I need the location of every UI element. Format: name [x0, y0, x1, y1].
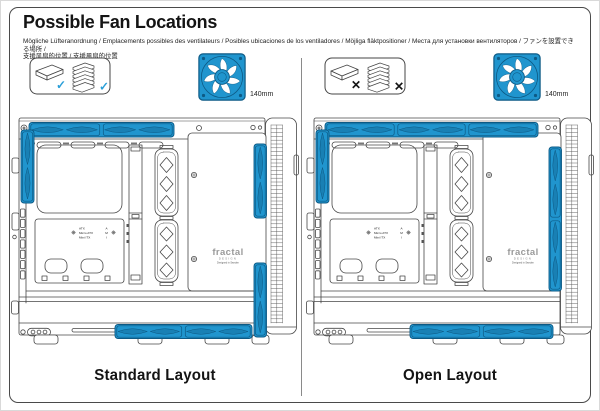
svg-text:Mini ITX: Mini ITX [374, 236, 385, 240]
svg-text:ATX: ATX [79, 227, 85, 231]
layout-section-open: ✕✕ 140mm ATXAMicro ATXMMini ITXIfractalD… [304, 51, 596, 403]
svg-text:I: I [401, 236, 402, 240]
layout-label-standard: Standard Layout [13, 367, 296, 385]
case-diagram-standard: ATXAMicro ATXMMini ITXIfractalDESIGNDesi… [9, 113, 299, 363]
svg-text:fractal: fractal [507, 247, 538, 258]
svg-text:Mini ITX: Mini ITX [79, 236, 90, 240]
svg-text:Designed in Sweden: Designed in Sweden [512, 262, 535, 265]
case-diagram-open: ATXAMicro ATXMMini ITXIfractalDESIGNDesi… [304, 113, 594, 363]
fan-size-label: 140mm [250, 91, 273, 98]
svg-text:DESIGN: DESIGN [219, 257, 237, 261]
layout-label-open: Open Layout [308, 367, 591, 385]
svg-text:I: I [106, 236, 107, 240]
svg-text:✓: ✓ [99, 80, 109, 94]
svg-text:Designed in Sweden: Designed in Sweden [217, 262, 240, 265]
page-title: Possible Fan Locations [23, 11, 217, 33]
svg-text:DESIGN: DESIGN [514, 257, 532, 261]
fan-140mm-icon [198, 53, 246, 101]
svg-text:✓: ✓ [56, 78, 66, 92]
drive-cages-removed-icon: ✕✕ [324, 57, 406, 95]
svg-text:Micro ATX: Micro ATX [79, 231, 93, 235]
fan-size-label: 140mm [545, 91, 568, 98]
layout-section-standard: ✓✓ 140mm ATXAMicro ATXMMini ITXIfractalD… [9, 51, 301, 403]
fan-140mm-icon [493, 53, 541, 101]
svg-text:✕: ✕ [351, 78, 361, 92]
svg-text:Micro ATX: Micro ATX [374, 231, 388, 235]
svg-text:M: M [105, 231, 108, 235]
svg-text:fractal: fractal [212, 247, 243, 258]
svg-text:ATX: ATX [374, 227, 380, 231]
svg-text:M: M [400, 231, 403, 235]
svg-text:✕: ✕ [394, 80, 404, 94]
manual-page: Possible Fan Locations Mögliche Lüfteran… [0, 0, 600, 411]
drive-cages-allowed-icon: ✓✓ [29, 57, 111, 95]
